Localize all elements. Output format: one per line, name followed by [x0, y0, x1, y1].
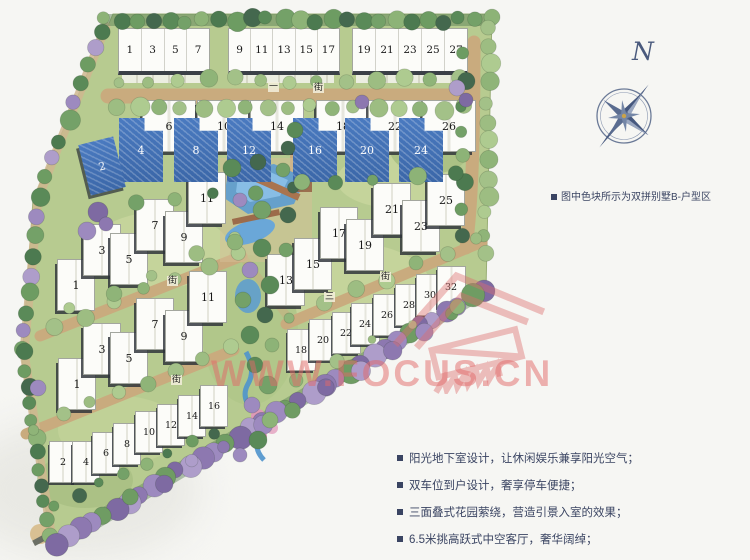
rowhouse-block-3: 1921232527 — [352, 28, 468, 75]
rowhouse-unit-7: 7 — [186, 29, 209, 71]
rowhouse-unit-17: 17 — [317, 29, 339, 71]
feature-item: 双车位到户设计，奢享停车便捷； — [397, 479, 742, 494]
feature-bullet-icon — [397, 455, 403, 461]
site-plan-page: 一 街 街 街 三 街 1357911131517192123252764108… — [0, 0, 750, 560]
south-tip-structure — [30, 524, 50, 546]
rowhouse-unit-5: 5 — [164, 29, 187, 71]
legend-bullet-icon — [551, 194, 557, 200]
feature-bullet-icon — [397, 509, 403, 515]
rowhouse-unit-13: 13 — [272, 29, 294, 71]
playground-flowers — [251, 409, 278, 441]
rowhouse-garden-stub — [122, 74, 204, 83]
feature-text: 三面叠式花园萦绕，营造引景入室的效果； — [409, 506, 628, 521]
rowhouse-unit-15: 15 — [295, 29, 317, 71]
feature-item: 阳光地下室设计，让休闲娱乐兼享阳光空气； — [397, 452, 742, 467]
feature-list: 阳光地下室设计，让休闲娱乐兼享阳光空气； 双车位到户设计，奢享停车便捷； 三面叠… — [397, 452, 742, 560]
rowhouse-garden-stub — [356, 74, 462, 83]
feature-text: 阳光地下室设计，让休闲娱乐兼享阳光空气； — [409, 452, 639, 467]
legend-note-text: 图中色块所示为双拼别墅B-户型区 — [561, 191, 711, 205]
feature-item: 三面叠式花园萦绕，营造引景入室的效果； — [397, 506, 742, 521]
rowhouse-unit-25: 25 — [421, 29, 444, 71]
feature-item: 6.5米挑高跃式中空客厅，奢华阔绰； — [397, 533, 742, 548]
rowhouse-unit-1: 1 — [119, 29, 141, 71]
compass-n-label: N — [631, 37, 655, 66]
rowhouse-unit-3: 3 — [141, 29, 164, 71]
feature-text: 双车位到户设计，奢享停车便捷； — [409, 479, 582, 494]
street-label-left-lower: 街 — [171, 375, 182, 385]
street-label-right-num: 三 — [324, 292, 335, 302]
street-label-top: 街 — [313, 83, 324, 93]
feature-text: 6.5米挑高跃式中空客厅，奢华阔绰； — [409, 533, 598, 548]
watermark-url: WWW.FOCUS.CN — [211, 353, 553, 395]
building-lot-2-highlight: 2 — [78, 136, 126, 195]
rowhouse-block-2: 911131517 — [228, 28, 340, 75]
rowhouse-unit-23: 23 — [398, 29, 421, 71]
rowhouse-block-1: 1357 — [118, 28, 210, 75]
rowhouse-unit-9: 9 — [229, 29, 250, 71]
rowhouse-unit-27: 27 — [444, 29, 467, 71]
compass-rose-icon: N — [578, 32, 678, 160]
rowhouse-unit-21: 21 — [375, 29, 398, 71]
feature-bullet-icon — [397, 482, 403, 488]
water-features — [222, 164, 306, 460]
rowhouse-unit-11: 11 — [250, 29, 272, 71]
rowhouse-unit-19: 19 — [353, 29, 375, 71]
legend-note: 图中色块所示为双拼别墅B-户型区 — [551, 191, 749, 205]
street-label-left-upper: 街 — [167, 276, 178, 286]
street-label-top-prefix: 一 — [268, 82, 279, 92]
building-lot-11: 11 — [189, 271, 227, 323]
feature-bullet-icon — [397, 536, 403, 542]
